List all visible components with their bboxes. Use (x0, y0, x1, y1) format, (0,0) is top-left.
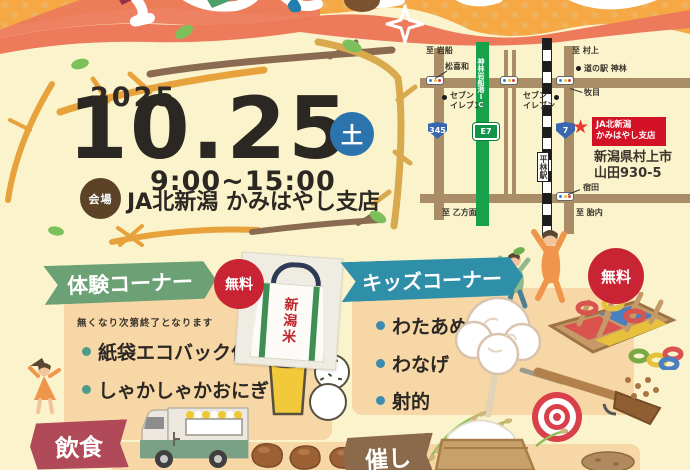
destination-star-icon: ★ (572, 116, 589, 138)
map-label-ic-name: 神林岩船港IC (477, 58, 484, 109)
destination-name-line2: かみはやし支店 (596, 131, 662, 142)
map-label-to-otsu: 至 乙方面 (442, 208, 477, 218)
kids-item: わたあめ (376, 312, 468, 339)
taiken-note: 無くなり次第終了となります (77, 315, 213, 329)
destination-name-line1: JA北新潟 (596, 120, 662, 131)
address-line2: 山田930-5 (594, 166, 672, 182)
events-card (414, 444, 640, 470)
bag-strap (309, 287, 320, 361)
venue-name: JA北新潟 かみはやし支店 (127, 184, 380, 216)
taiken-banner: 体験コーナー (43, 260, 216, 305)
bullet-icon (376, 321, 385, 330)
access-map: 至 岩船 至 村上 松喜和 セブン イレブン セブン イレブン 神林岩船港IC … (420, 42, 690, 238)
railway-line (542, 38, 552, 244)
road-vertical-thin-1 (504, 50, 508, 202)
bag-text: 新潟米 (278, 296, 301, 345)
map-label-matsukiwa: 松喜和 (445, 62, 469, 72)
map-label-makime: 牧目 (584, 88, 600, 98)
kids-banner: キッズコーナー (340, 256, 523, 302)
route-345-badge: 345 (428, 122, 447, 139)
taiken-free-label: 無料 (225, 274, 253, 294)
event-date: 10.25 (68, 84, 350, 174)
kids-item: わなげ (376, 350, 449, 377)
map-label-michinoeki: 道の駅 神林 (584, 64, 627, 74)
road-vertical-east (564, 46, 574, 234)
address-line1: 新潟県村上市 (594, 150, 672, 166)
food-title: 飲食 (54, 427, 103, 464)
map-label-station: 平林駅 (537, 152, 549, 182)
map-label-to-murakami: 至 村上 (572, 46, 599, 56)
events-title: 催し (364, 439, 412, 470)
girl-character (26, 356, 68, 418)
bullet-icon (82, 347, 91, 356)
kids-free-label: 無料 (601, 266, 631, 287)
kids-item-label: 射的 (392, 387, 430, 414)
map-label-to-tainai: 至 胎内 (576, 208, 603, 218)
kids-item-label: わなげ (392, 350, 449, 377)
kids-item-label: わたあめ (392, 312, 468, 339)
kids-free-badge: 無料 (588, 248, 644, 304)
traffic-signal-icon (556, 76, 574, 85)
road-horizontal-south (420, 194, 690, 203)
event-weekday-badge: 土 (330, 112, 374, 156)
taiken-free-badge: 無料 (214, 259, 264, 309)
taiken-item-label: しゃかしゃかおにぎり (98, 376, 288, 403)
food-banner: 飲食 (29, 419, 129, 470)
flyer: 2025 10.25 土 9:00~15:00 会場 JA北新潟 かみはやし支店… (0, 0, 690, 470)
taiken-title: 体験コーナー (67, 265, 194, 299)
poi-dot (576, 66, 581, 71)
map-label-seven-eleven-center: セブン イレブン (523, 91, 555, 111)
events-banner: 催し (341, 433, 435, 470)
clipped-title-artwork (132, 0, 668, 22)
taiken-item: しゃかしゃかおにぎり (82, 376, 288, 403)
traffic-signal-icon (500, 76, 518, 85)
title-color-accents (118, 0, 380, 12)
bullet-icon (376, 396, 385, 405)
orange-dot-band (0, 0, 690, 36)
map-label-to-iwafune: 至 岩船 (426, 46, 453, 56)
food-card (112, 442, 360, 470)
sparkle-icon (387, 6, 423, 42)
kids-item: 射的 (376, 387, 430, 414)
destination-address: 新潟県村上市 山田930-5 (594, 150, 672, 183)
venue-label-badge: 会場 (80, 178, 121, 219)
kids-title: キッズコーナー (362, 262, 503, 296)
map-label-shukuda: 宿田 (583, 183, 599, 193)
bullet-icon (376, 359, 385, 368)
road-horizontal-main (420, 78, 690, 88)
route-e7-badge: E7 (473, 123, 499, 140)
coral-band-2 (0, 0, 320, 38)
poi-dot (554, 95, 559, 100)
poi-dot (442, 95, 447, 100)
bullet-icon (82, 385, 91, 394)
destination-box: JA北新潟 かみはやし支店 (592, 117, 666, 146)
road-vertical-thin-2 (512, 50, 516, 202)
